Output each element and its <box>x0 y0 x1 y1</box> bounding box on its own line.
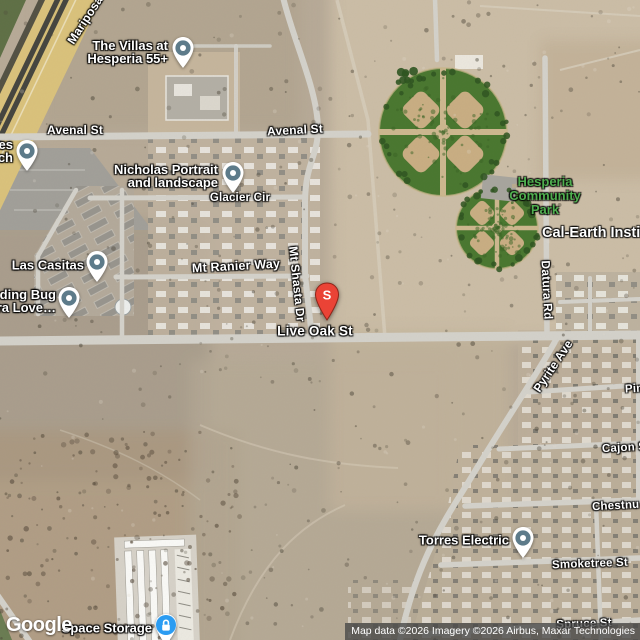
poi-label-church-edge[interactable]: esch <box>0 138 13 165</box>
attribution-text: Map data ©2026 Imagery ©2026 Airbus, Max… <box>351 625 635 637</box>
poi-pin-space-storage[interactable] <box>152 612 180 640</box>
poi-label-nicholas-portrait-and-landscape[interactable]: Nicholas Portraitand landscape <box>114 163 218 190</box>
poi-pin-torres-electric[interactable] <box>510 526 536 564</box>
poi-pin-icon <box>510 526 536 559</box>
poi-pin-church-edge[interactable] <box>14 139 40 177</box>
search-result-marker-icon: S <box>314 282 340 322</box>
search-result-marker[interactable]: S <box>314 282 340 327</box>
poi-label-space-storage[interactable]: Space Storage <box>62 621 152 634</box>
poi-pin-las-casitas[interactable] <box>84 250 110 288</box>
poi-pin-bug-edge[interactable] <box>56 286 82 324</box>
poi-label-the-villas-at-hesperia-55[interactable]: The Villas atHesperia 55+ <box>87 39 168 66</box>
google-logo[interactable]: Google <box>6 614 72 637</box>
poi-pin-icon <box>56 286 82 319</box>
poi-label-bug-edge[interactable]: ding Bugra Love… <box>0 288 56 315</box>
attribution-bar[interactable]: Map data ©2026 Imagery ©2026 Airbus, Max… <box>345 623 640 640</box>
poi-pin-the-villas-at-hesperia-55[interactable] <box>170 36 196 74</box>
storage-pin-icon <box>152 612 180 640</box>
map-viewport[interactable]: MariposaAvenal StAvenal StGlacier CirMt … <box>0 0 640 640</box>
svg-text:S: S <box>323 288 332 303</box>
poi-pin-icon <box>84 250 110 283</box>
poi-pin-icon <box>220 161 246 194</box>
poi-label-torres-electric[interactable]: Torres Electric <box>419 533 509 546</box>
poi-pin-icon <box>170 36 196 69</box>
poi-label-las-casitas[interactable]: Las Casitas <box>12 258 84 271</box>
poi-pin-nicholas-portrait-and-landscape[interactable] <box>220 161 246 199</box>
poi-pin-icon <box>14 139 40 172</box>
